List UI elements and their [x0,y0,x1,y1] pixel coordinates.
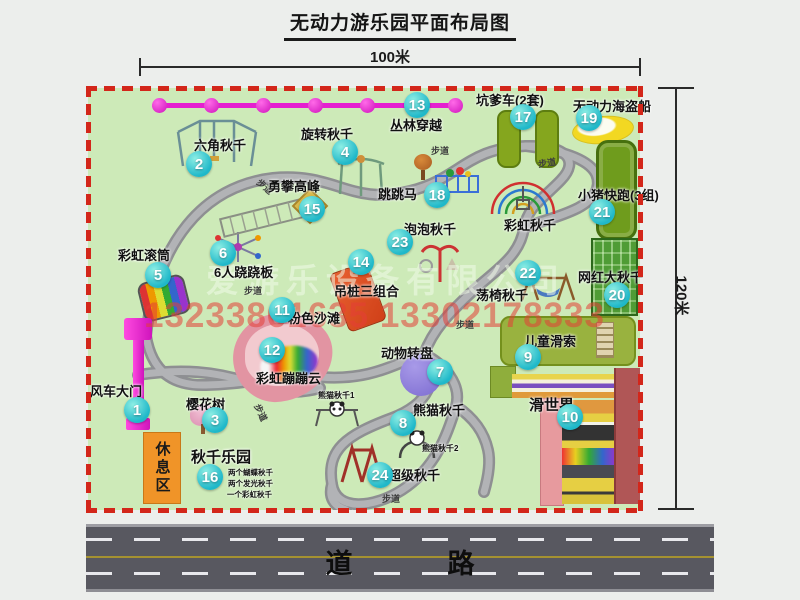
badge-10: 10 [557,404,583,430]
badge-21: 21 [589,199,615,225]
badge-20: 20 [604,282,630,308]
label-peak-climbing: 勇攀高峰 [268,176,320,195]
badge-7: 7 [427,359,453,385]
map-border-bottom [86,508,642,513]
zipline-dot [152,98,167,113]
label-swing-park: 秋千乐园 [191,446,251,467]
badge-9: 9 [515,344,541,370]
label-rainbow-swing: 彩虹秋千 [504,215,556,234]
label-super-swing: 超级秋千 [388,465,440,484]
badge-11: 11 [269,297,295,323]
page-title: 无动力游乐园平面布局图 [284,8,516,41]
badge-8: 8 [390,410,416,436]
badge-13: 13 [404,92,430,118]
badge-12: 12 [259,337,285,363]
badge-4: 4 [332,139,358,165]
badge-17: 17 [510,104,536,130]
label-piggy-run: 小猪快跑(3组) [578,185,659,204]
label-rocking-swing: 荡椅秋千 [476,285,528,304]
walkway-label: 步道 [244,284,262,297]
badge-1: 1 [124,397,150,423]
swing-park-detail-3: 一个彩虹秋千 [227,490,272,500]
label-panda-swing-2: 熊猫秋千2 [422,443,458,454]
phone-watermark: 13233861635 13302178333 [144,296,605,336]
badge-24: 24 [367,462,393,488]
badge-16: 16 [197,464,223,490]
label-rainbow-cloud: 彩虹蹦蹦云 [256,368,321,387]
road-dash-line-top [86,538,714,541]
walkway-label: 步道 [456,318,474,331]
zipline-dot [204,98,219,113]
label-animal-carousel: 动物转盘 [381,343,433,362]
badge-19: 19 [576,105,602,131]
tree-trunk [421,170,425,180]
label-kengdie-car: 坑爹车(2套) [476,90,544,109]
zipline-dot [256,98,271,113]
tree-icon [414,154,432,170]
swing-park-detail-1: 两个蝴蝶秋千 [228,468,273,478]
badge-15: 15 [299,196,325,222]
badge-18: 18 [424,182,450,208]
zipline-dot [308,98,323,113]
height-dim-tick-top [658,87,694,89]
label-panda-swing: 熊猫秋千 [413,400,465,419]
walkway-label: 步道 [537,155,557,170]
width-dimension-line [140,66,640,68]
label-rainbow-roller: 彩虹滚筒 [118,245,170,264]
badge-3: 3 [202,407,228,433]
zipline-dot [360,98,375,113]
height-dimension-label: 120米 [672,275,693,315]
road-label: 道 路 [86,542,714,581]
rest-area-label: 休息区 [152,441,173,495]
map-border-left [86,86,91,512]
swing-park-detail-2: 两个发光秋千 [228,479,273,489]
badge-14: 14 [348,249,374,275]
width-dim-tick-left [139,58,141,76]
badge-2: 2 [186,151,212,177]
label-pink-beach: 粉色沙滩 [288,308,340,327]
label-panda-swing-1: 熊猫秋千1 [318,390,354,401]
park-map: 爱游乐设备有限公司 13233861635 13302178333 [88,88,640,510]
width-dimension-label: 100米 [140,46,640,67]
label-jumping-horse: 跳跳马 [378,184,417,203]
map-border-top [86,86,642,91]
badge-22: 22 [515,260,541,286]
height-dim-tick-bottom [658,508,694,510]
slide-world-red-band [614,368,640,504]
panda-swing-1-icon [312,400,362,428]
badge-5: 5 [145,262,171,288]
walkway-label: 步道 [382,492,400,505]
zipline-dot [448,98,463,113]
label-hanging-combo: 吊桩三组合 [334,281,399,300]
road: 道 路 [86,524,714,592]
walkway-label: 步道 [431,144,449,157]
rainbow-swing-icon [484,168,562,220]
width-dim-tick-right [639,58,641,76]
page-title-wrap: 无动力游乐园平面布局图 [0,8,800,41]
badge-23: 23 [387,229,413,255]
rest-area: 休息区 [143,432,181,504]
badge-6: 6 [210,240,236,266]
map-border-right [638,86,643,512]
label-bubble-swing: 泡泡秋千 [404,219,456,238]
